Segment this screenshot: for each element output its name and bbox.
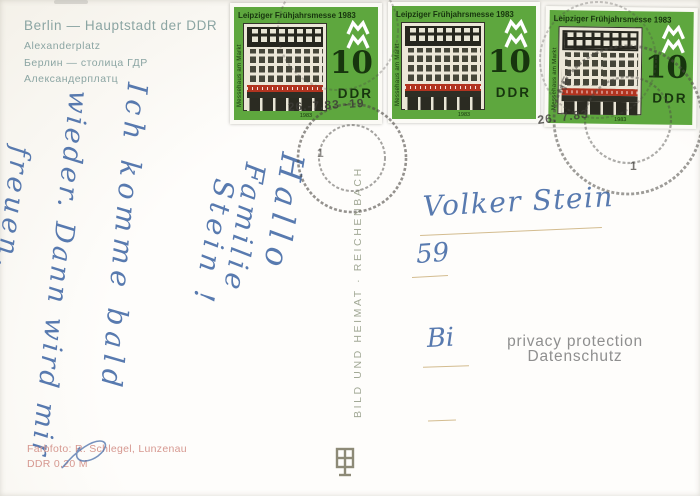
stamp-design: Leipziger Frühjahrsmesse 1983 Messehaus … bbox=[234, 7, 378, 120]
privacy-line-de: Datenschutz bbox=[472, 349, 678, 364]
stamp-country: DDR bbox=[652, 90, 687, 105]
privacy-line-en: privacy protection bbox=[472, 334, 678, 349]
handwritten-message-line-1: Ich komme bald bbox=[94, 81, 154, 394]
stamp-country: DDR bbox=[496, 85, 531, 100]
stamp-title: Leipziger Frühjahrsmesse 1983 bbox=[554, 13, 672, 25]
scan-smudge bbox=[54, 0, 88, 4]
privacy-overlay: privacy protection Datenschutz bbox=[472, 334, 678, 364]
address-underline-4 bbox=[428, 420, 456, 422]
address-underline-1 bbox=[420, 227, 602, 236]
building-windows bbox=[247, 49, 323, 85]
building-sign-band bbox=[562, 30, 638, 51]
messehaus-building bbox=[557, 26, 642, 115]
stamp-title: Leipziger Frühjahrsmesse 1983 bbox=[238, 10, 356, 20]
postcard-back: Berlin — Hauptstadt der DDR Alexanderpla… bbox=[0, 0, 700, 496]
credits-price: DDR 0,20 M bbox=[27, 457, 187, 472]
stamp-country: DDR bbox=[338, 86, 373, 101]
stamp-denomination: 10 bbox=[488, 47, 531, 78]
building-windows bbox=[405, 48, 481, 84]
building-red-banner bbox=[247, 85, 323, 92]
building-storefront bbox=[247, 98, 323, 111]
handwritten-message-line-3: freuen. bbox=[0, 144, 36, 273]
stamp-year: 1983 bbox=[300, 113, 312, 119]
address-line-3: Bi bbox=[426, 323, 455, 354]
stamp-denomination: 10 bbox=[330, 48, 373, 79]
postage-stamp-2: Leipziger Frühjahrsmesse 1983 Messehaus … bbox=[388, 2, 540, 123]
handwritten-message-line-2: wieder. Dann wird mir bbox=[25, 89, 94, 460]
stamp-side-caption: Messehaus am Markt bbox=[551, 47, 558, 110]
stamp-design: Leipziger Frühjahrsmesse 1983 Messehaus … bbox=[548, 10, 694, 125]
caption-title-russian: Берлин — столица ГДР bbox=[24, 57, 217, 69]
address-line-2: 59 bbox=[415, 238, 450, 270]
building-red-banner bbox=[405, 84, 481, 91]
building-windows bbox=[562, 52, 638, 89]
postage-stamp-1: Leipziger Frühjahrsmesse 1983 Messehaus … bbox=[230, 3, 382, 124]
publisher-imprint: BILD UND HEIMAT · REICHENBACH bbox=[352, 166, 364, 418]
credits-block: Farbfoto: R. Schlegel, Lunzenau DDR 0,20… bbox=[27, 442, 187, 472]
stamp-title: Leipziger Frühjahrsmesse 1983 bbox=[396, 9, 514, 19]
stamp-year: 1983 bbox=[614, 117, 626, 123]
caption-block: Berlin — Hauptstadt der DDR Alexanderpla… bbox=[24, 18, 217, 90]
stamp-design: Leipziger Frühjahrsmesse 1983 Messehaus … bbox=[392, 6, 536, 119]
address-recipient-name: Volker Stein bbox=[422, 180, 615, 223]
address-underline-3 bbox=[423, 365, 469, 368]
stamp-side-caption: Messehaus am Markt bbox=[395, 43, 401, 106]
postmark-machine-number: 1 bbox=[630, 159, 638, 173]
bild-und-heimat-window-logo-icon bbox=[332, 446, 358, 482]
postage-stamp-3: Leipziger Frühjahrsmesse 1983 Messehaus … bbox=[544, 6, 698, 129]
building-storefront bbox=[561, 101, 637, 115]
messehaus-building bbox=[243, 23, 327, 111]
building-storefront bbox=[405, 97, 481, 110]
address-underline-2 bbox=[412, 275, 448, 278]
stamp-denomination: 10 bbox=[645, 52, 689, 84]
caption-subtitle: Alexanderplatz bbox=[24, 40, 217, 52]
building-sign-band bbox=[247, 27, 323, 47]
stamp-year: 1983 bbox=[458, 112, 470, 118]
caption-title: Berlin — Hauptstadt der DDR bbox=[24, 18, 217, 33]
postmark-machine-number-2: 1 bbox=[317, 146, 325, 160]
messehaus-building bbox=[401, 22, 485, 110]
stamp-side-caption: Messehaus am Markt bbox=[237, 44, 243, 107]
credits-photographer: Farbfoto: R. Schlegel, Lunzenau bbox=[27, 442, 187, 457]
building-sign-band bbox=[405, 26, 481, 46]
